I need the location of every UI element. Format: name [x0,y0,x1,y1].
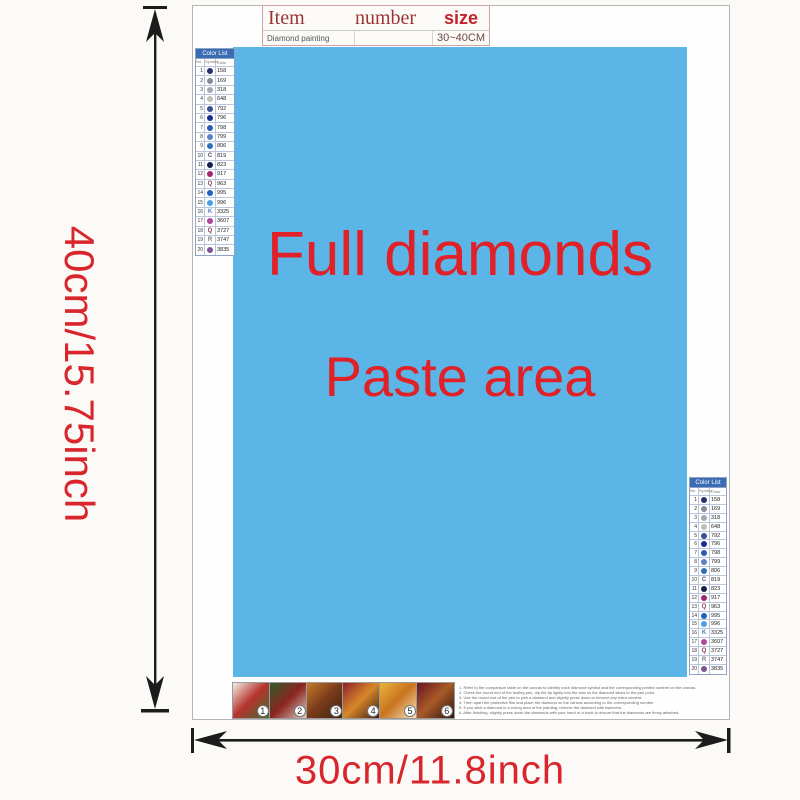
color-list-row: 13Q963 [196,180,234,189]
color-row-number: 14 [690,612,699,620]
color-row-number: 11 [196,161,205,169]
color-list-row: 203835 [196,245,234,254]
color-row-code: 169 [216,78,234,84]
item-table-header-number: number [355,7,433,30]
col-color: Color [216,60,234,65]
color-swatch-dot [701,550,707,556]
item-table-header-size: size [433,8,489,29]
color-row-code: 996 [710,621,726,627]
step-number-badge: 4 [367,705,379,717]
color-row-number: 13 [196,180,205,188]
instruction-text-block: 1. Refer to the comparison table on the … [459,686,699,715]
color-row-symbol [699,558,710,566]
color-swatch-dot [701,595,707,601]
step-photo: 1 [233,683,270,718]
col-symbol: Symbol [205,59,216,66]
color-row-symbol [205,114,216,122]
color-row-code: 3325 [710,630,726,636]
color-swatch-dot [207,247,213,253]
color-list-row: 3318 [690,514,726,523]
color-row-number: 10 [690,576,699,584]
color-swatch-dot [701,533,707,539]
color-list-row: 203835 [690,665,726,674]
color-symbol-letter: Q [208,228,213,234]
color-swatch-dot [207,171,213,177]
color-list-row: 8799 [690,558,726,567]
color-row-code: 318 [216,87,234,93]
color-row-number: 7 [690,549,699,557]
color-row-symbol: K [699,629,710,637]
color-list-row: 15996 [196,198,234,207]
color-swatch-dot [701,621,707,627]
step-number-badge: 6 [441,705,453,717]
color-row-number: 19 [690,656,699,664]
color-row-code: 806 [710,568,726,574]
color-row-number: 20 [690,665,699,674]
color-row-code: 648 [710,524,726,530]
color-row-code: 169 [710,506,726,512]
color-swatch-dot [701,506,707,512]
color-list-column-headers: No.SymbolColor [196,59,234,67]
color-row-symbol [205,76,216,84]
color-row-code: 158 [216,68,234,74]
color-row-code: 995 [710,613,726,619]
step-photo: 2 [270,683,307,718]
step-photo: 5 [380,683,417,718]
color-row-symbol [699,620,710,628]
color-row-symbol [699,585,710,593]
step-number-badge: 3 [330,705,342,717]
color-list-row: 5792 [196,105,234,114]
color-row-number: 17 [196,217,205,225]
color-row-number: 4 [196,95,205,103]
color-swatch-dot [701,559,707,565]
color-list-row: 13Q963 [690,603,726,612]
color-row-symbol [205,123,216,131]
product-size-diagram: { "dimensions": { "height_label": "40cm/… [0,0,800,800]
color-swatch-dot [701,666,707,672]
color-swatch-dot [207,190,213,196]
color-row-symbol [205,86,216,94]
color-row-number: 1 [196,67,205,75]
color-row-symbol [205,189,216,197]
color-row-code: 995 [216,190,234,196]
color-list-row: 15996 [690,620,726,629]
color-list-row: 14995 [196,189,234,198]
col-color: Color [710,489,726,494]
color-symbol-letter: Q [702,648,707,654]
color-swatch-dot [207,162,213,168]
color-swatch-dot [701,515,707,521]
color-list-row: 4648 [196,95,234,104]
color-list-title: Color List [690,478,726,488]
color-row-symbol: C [699,576,710,584]
color-row-symbol [205,161,216,169]
color-list-row: 173607 [690,638,726,647]
color-list-row: 2169 [690,505,726,514]
color-swatch-dot [207,87,213,93]
color-swatch-dot [207,200,213,206]
color-row-code: 917 [710,595,726,601]
col-symbol: Symbol [699,488,710,495]
color-symbol-letter: C [702,577,706,583]
step-number-badge: 2 [294,705,306,717]
color-list-row: 2169 [196,76,234,85]
color-list-row: 5792 [690,532,726,541]
color-row-code: 796 [216,115,234,121]
color-list-row: 16K3325 [196,208,234,217]
color-row-symbol: Q [699,603,710,611]
color-list-row: 18Q3727 [690,647,726,656]
color-row-number: 6 [196,114,205,122]
color-list-right: Color ListNo.SymbolColor1158216933184648… [689,477,727,675]
color-row-symbol [699,523,710,531]
color-row-number: 16 [196,208,205,216]
color-row-symbol [699,549,710,557]
color-row-number: 4 [690,523,699,531]
color-row-number: 15 [196,198,205,206]
color-row-code: 823 [216,162,234,168]
color-row-number: 12 [196,170,205,178]
color-list-row: 16K3325 [690,629,726,638]
color-row-symbol [205,105,216,113]
paste-area: Full diamonds Paste area [233,47,687,677]
color-row-code: 3607 [216,218,234,224]
color-swatch-dot [207,125,213,131]
color-row-number: 18 [196,227,205,235]
color-symbol-letter: Q [208,181,213,187]
item-table-header-row: Item number size [263,6,489,30]
color-row-number: 8 [690,558,699,566]
color-row-number: 5 [690,532,699,540]
color-row-number: 2 [690,505,699,513]
color-row-symbol [205,198,216,206]
color-list-row: 9806 [690,567,726,576]
color-row-code: 158 [710,497,726,503]
color-symbol-letter: K [702,630,706,636]
step-photo-strip: 123456 [233,683,454,718]
color-row-symbol [699,496,710,504]
color-row-symbol [205,133,216,141]
color-row-number: 3 [196,86,205,94]
step-photo: 3 [307,683,344,718]
color-row-number: 20 [196,245,205,254]
color-list-row: 4648 [690,523,726,532]
instruction-line: 6. After finishing, slightly press down … [459,711,699,716]
color-swatch-dot [701,586,707,592]
color-row-number: 13 [690,603,699,611]
width-dimension-label: 30cm/11.8inch [295,749,565,794]
color-symbol-letter: C [208,153,212,159]
color-row-code: 796 [710,541,726,547]
color-row-symbol [699,665,710,674]
color-list-row: 9806 [196,142,234,151]
color-row-number: 10 [196,152,205,160]
color-row-code: 3747 [216,237,234,243]
color-row-number: 2 [196,76,205,84]
color-symbol-letter: R [208,237,212,243]
color-row-symbol: C [205,152,216,160]
color-list-row: 6796 [196,114,234,123]
color-row-code: 799 [216,134,234,140]
color-row-code: 799 [710,559,726,565]
color-list-row: 19R3747 [690,656,726,665]
color-list-title: Color List [196,49,234,59]
color-row-number: 11 [690,585,699,593]
color-row-number: 6 [690,540,699,548]
color-symbol-letter: K [208,209,212,215]
step-number-badge: 5 [404,705,416,717]
color-row-symbol: K [205,208,216,216]
color-symbol-letter: R [702,657,706,663]
color-list-row: 1158 [196,67,234,76]
color-row-symbol: R [205,236,216,244]
color-swatch-dot [207,96,213,102]
color-swatch-dot [207,134,213,140]
color-list-row: 10C819 [690,576,726,585]
color-row-code: 3607 [710,639,726,645]
color-row-number: 8 [196,133,205,141]
paste-area-title-line2: Paste area [233,344,687,409]
color-swatch-dot [207,143,213,149]
color-swatch-dot [701,541,707,547]
color-list-row: 6796 [690,540,726,549]
color-row-code: 3835 [216,247,234,253]
color-row-symbol [205,170,216,178]
color-row-code: 806 [216,143,234,149]
color-row-code: 819 [216,153,234,159]
color-row-code: 996 [216,200,234,206]
color-row-code: 963 [216,181,234,187]
color-swatch-dot [207,78,213,84]
color-row-number: 14 [196,189,205,197]
color-row-symbol [699,638,710,646]
step-number-badge: 1 [257,705,269,717]
vertical-dimension-arrow [141,6,169,713]
color-row-code: 3325 [216,209,234,215]
color-row-code: 917 [216,171,234,177]
color-list-row: 7798 [690,549,726,558]
color-row-code: 823 [710,586,726,592]
color-list-left: Color ListNo.SymbolColor1158216933184648… [195,48,235,256]
color-row-number: 15 [690,620,699,628]
color-row-code: 963 [710,604,726,610]
color-row-number: 3 [690,514,699,522]
color-row-symbol [205,142,216,150]
color-row-number: 12 [690,594,699,602]
color-swatch-dot [701,568,707,574]
color-list-row: 1158 [690,496,726,505]
color-list-row: 12917 [196,170,234,179]
col-no: No. [690,488,699,495]
color-row-symbol [699,567,710,575]
color-list-row: 8799 [196,133,234,142]
color-row-number: 16 [690,629,699,637]
paste-area-title-line1: Full diamonds [233,219,687,290]
item-table-header-item: Item [263,7,355,30]
item-table-data-row: Diamond painting 30~40CM [263,30,489,45]
color-row-code: 792 [710,533,726,539]
color-row-symbol: Q [699,647,710,655]
color-row-code: 3727 [710,648,726,654]
color-row-number: 17 [690,638,699,646]
item-info-table: Item number size Diamond painting 30~40C… [262,5,490,46]
color-row-code: 3727 [216,228,234,234]
color-row-symbol [699,612,710,620]
color-row-symbol [699,532,710,540]
color-row-symbol [699,514,710,522]
color-row-symbol [205,95,216,103]
step-photo: 4 [343,683,380,718]
color-list-row: 11823 [196,161,234,170]
color-row-code: 3747 [710,657,726,663]
color-list-row: 19R3747 [196,236,234,245]
color-row-symbol [205,245,216,254]
color-row-symbol [699,505,710,513]
item-table-value-item: Diamond painting [263,31,355,45]
color-list-row: 11823 [690,585,726,594]
color-row-symbol [205,67,216,75]
color-row-symbol: Q [205,227,216,235]
color-row-code: 3835 [710,666,726,672]
color-swatch-dot [207,106,213,112]
color-row-code: 648 [216,96,234,102]
color-row-number: 18 [690,647,699,655]
color-row-number: 19 [196,236,205,244]
color-row-symbol [205,217,216,225]
height-dimension-label: 40cm/15.75inch [55,226,103,523]
color-row-number: 1 [690,496,699,504]
color-list-row: 10C819 [196,152,234,161]
color-row-number: 5 [196,105,205,113]
color-symbol-letter: Q [702,604,707,610]
color-swatch-dot [207,218,213,224]
color-row-symbol: Q [205,180,216,188]
color-list-row: 14995 [690,612,726,621]
color-swatch-dot [701,524,707,530]
step-photo: 6 [417,683,454,718]
color-list-row: 173607 [196,217,234,226]
color-list-row: 7798 [196,123,234,132]
color-row-symbol [699,594,710,602]
color-row-number: 9 [196,142,205,150]
color-list-row: 12917 [690,594,726,603]
color-swatch-dot [701,613,707,619]
color-swatch-dot [701,497,707,503]
color-swatch-dot [701,639,707,645]
col-no: No. [196,59,205,66]
color-row-symbol: R [699,656,710,664]
color-row-number: 7 [196,123,205,131]
color-row-code: 798 [710,550,726,556]
color-row-code: 798 [216,125,234,131]
color-row-number: 9 [690,567,699,575]
color-row-symbol [699,540,710,548]
color-swatch-dot [207,68,213,74]
color-swatch-dot [207,115,213,121]
color-row-code: 318 [710,515,726,521]
item-table-value-size: 30~40CM [433,32,489,44]
item-table-value-number [355,31,433,45]
color-list-row: 18Q3727 [196,227,234,236]
color-list-row: 3318 [196,86,234,95]
color-row-code: 819 [710,577,726,583]
color-row-code: 792 [216,106,234,112]
color-list-column-headers: No.SymbolColor [690,488,726,496]
